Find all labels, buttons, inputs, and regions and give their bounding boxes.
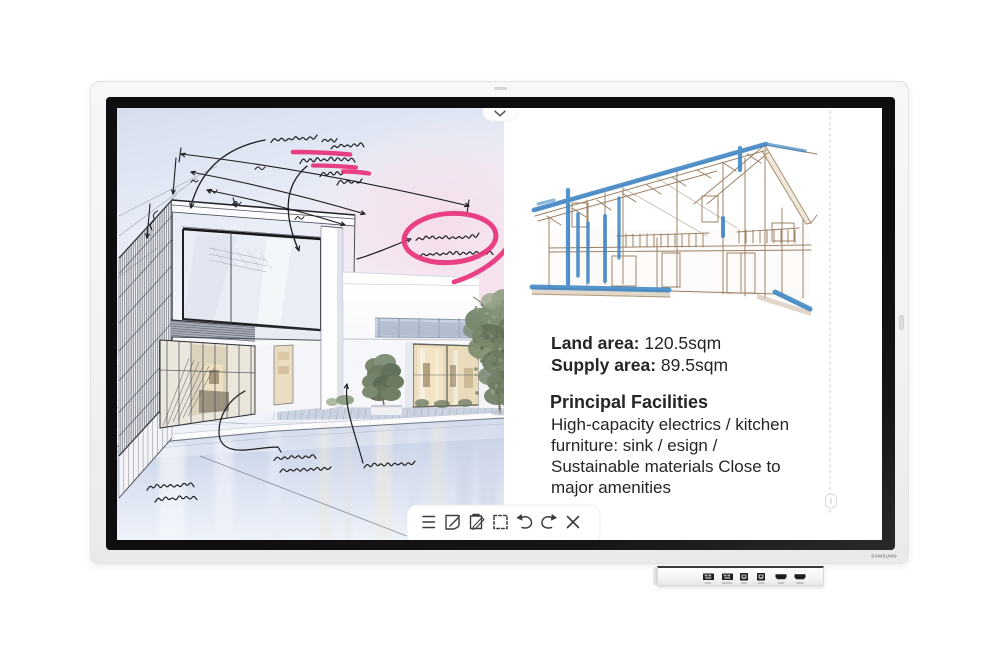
- svg-text:major amenities: major amenities: [551, 478, 671, 497]
- svg-text:furniture: sink / esign /: furniture: sink / esign /: [551, 436, 718, 455]
- svg-text:Supply area: 89.5sqm: Supply area: 89.5sqm: [551, 355, 728, 375]
- svg-text:Sustainable materials Close to: Sustainable materials Close to: [551, 457, 781, 476]
- svg-text:Principal Facilities: Principal Facilities: [550, 392, 708, 412]
- svg-text:High-capacity electrics / kitc: High-capacity electrics / kitchen: [551, 415, 789, 434]
- svg-text:SAMSUNG: SAMSUNG: [871, 554, 897, 559]
- svg-text:Land area: 120.5sqm: Land area: 120.5sqm: [551, 333, 721, 353]
